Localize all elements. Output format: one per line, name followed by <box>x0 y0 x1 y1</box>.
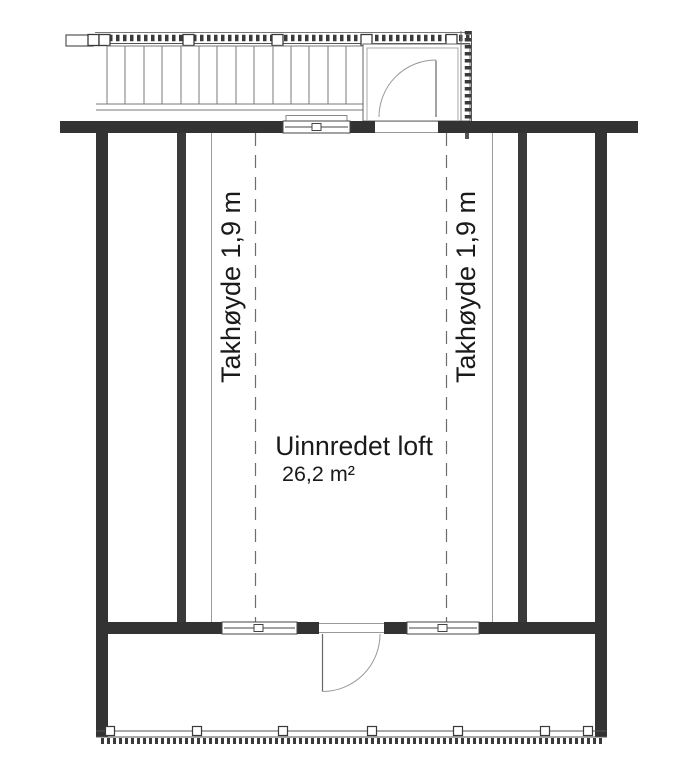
bottom-wall-left <box>96 622 222 634</box>
floor-plan-page: Takhøyde 1,9 m Takhøyde 1,9 m Uinnredet … <box>0 0 697 765</box>
stair-tread-lines <box>107 46 365 104</box>
top-wall-left <box>60 121 283 133</box>
right-wall <box>595 121 607 737</box>
ceiling-height-label-right: Takhøyde 1,9 m <box>451 191 481 383</box>
window-mullion <box>438 625 447 632</box>
bottom-wall-right <box>479 622 607 634</box>
ceiling-height-label-left: Takhøyde 1,9 m <box>216 191 246 383</box>
floor-plan-drawing: Takhøyde 1,9 m Takhøyde 1,9 m Uinnredet … <box>0 0 697 765</box>
room-name-label: Uinnredet loft <box>275 431 433 461</box>
left-wall <box>96 121 108 737</box>
bottom-window-left-symbol <box>222 622 297 634</box>
bottom-window-right-symbol <box>407 622 479 634</box>
window-mullion <box>312 124 321 131</box>
knee-wall-right <box>518 133 527 622</box>
window-sill <box>286 116 347 122</box>
door-swing-arc <box>323 634 381 692</box>
balcony-railing-hatched <box>96 727 607 742</box>
bottom-wall-pier-right <box>384 622 407 634</box>
window-mullion <box>254 625 263 632</box>
exterior-walls <box>60 121 638 737</box>
top-wall-right <box>438 121 638 133</box>
bottom-wall-pier-left <box>297 622 319 634</box>
balcony-door-symbol <box>319 624 384 692</box>
top-wall-pier <box>350 121 375 133</box>
top-window-symbol <box>283 116 350 134</box>
room-area-label: 26,2 m² <box>282 462 355 486</box>
knee-wall-left <box>177 133 186 622</box>
